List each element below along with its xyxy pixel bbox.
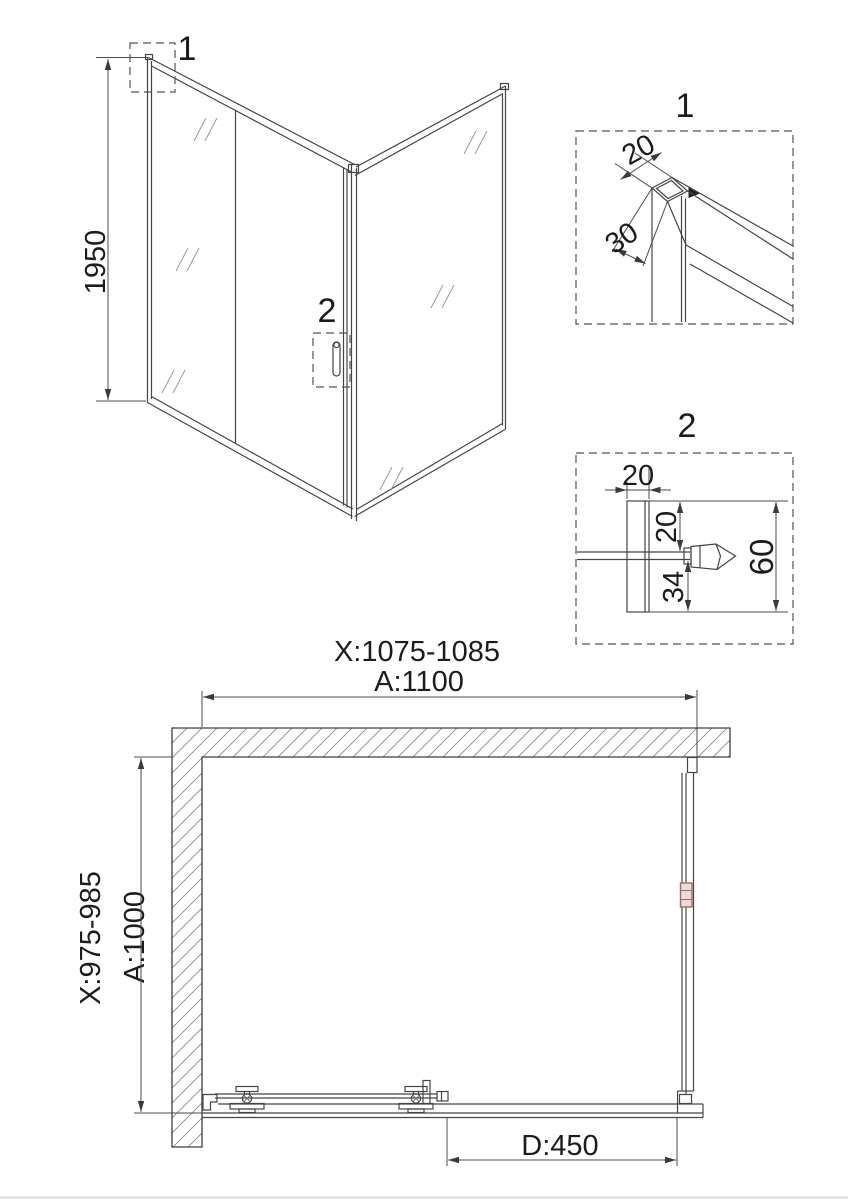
detail-2-label: 2: [678, 407, 697, 445]
roller-assembly-2: [399, 1081, 433, 1113]
dim-height-label: 1950: [80, 230, 112, 295]
plan-width-range-label: X:1075-1085: [334, 636, 500, 668]
handle-mount: [334, 342, 339, 347]
detail-2: 2 20 20 34: [576, 407, 793, 644]
detail-1-dim-depth: 30: [600, 216, 645, 261]
plan-view: X:1075-1085 A:1100 X:975-985 A:1000: [75, 636, 730, 1166]
roller-assembly-1: [230, 1087, 264, 1113]
detail-2-dims: 20 20 34 60: [605, 460, 788, 612]
plan-depth-label: A:1000: [119, 891, 151, 983]
bottom-rail: [202, 1081, 703, 1118]
plan-door-label: D:450: [521, 1130, 598, 1162]
callout-1-label: 1: [178, 30, 197, 68]
detail-1-profile: [652, 178, 793, 324]
handle-plan-marker: [681, 883, 693, 907]
dim-door: D:450: [447, 1118, 677, 1166]
detail-2-dim-bottom: 34: [658, 571, 690, 603]
wall-bracket-left: [203, 1095, 217, 1111]
detail-2-dim-profile: 20: [622, 460, 654, 492]
callout-2-box: [313, 333, 350, 387]
corner-bracket-bottom-right: [678, 1091, 694, 1113]
iso-view: 1 2 1950: [80, 30, 509, 521]
wall-hatched: [172, 728, 730, 1147]
plan-depth-range-label: X:975-985: [75, 871, 107, 1005]
dim-height-1950: 1950: [80, 58, 148, 402]
door-end-cap: [437, 1092, 448, 1102]
side-panel: [678, 758, 698, 1114]
detail-2-dim-top: 20: [651, 511, 683, 543]
door-handle: [333, 342, 340, 376]
detail-2-dim-total: 60: [743, 539, 780, 576]
wall-profile-top: [688, 758, 698, 773]
plan-width-label: A:1100: [374, 666, 464, 698]
iso-frame: [146, 55, 509, 522]
detail-1: 1 20 30: [576, 87, 793, 324]
detail-1-label: 1: [676, 87, 695, 125]
drawing-canvas: 1 2 1950 1: [0, 0, 848, 1200]
handle-knob: [691, 544, 736, 570]
callout-2-label: 2: [318, 292, 337, 330]
detail-1-dims: 20 30: [600, 128, 672, 266]
